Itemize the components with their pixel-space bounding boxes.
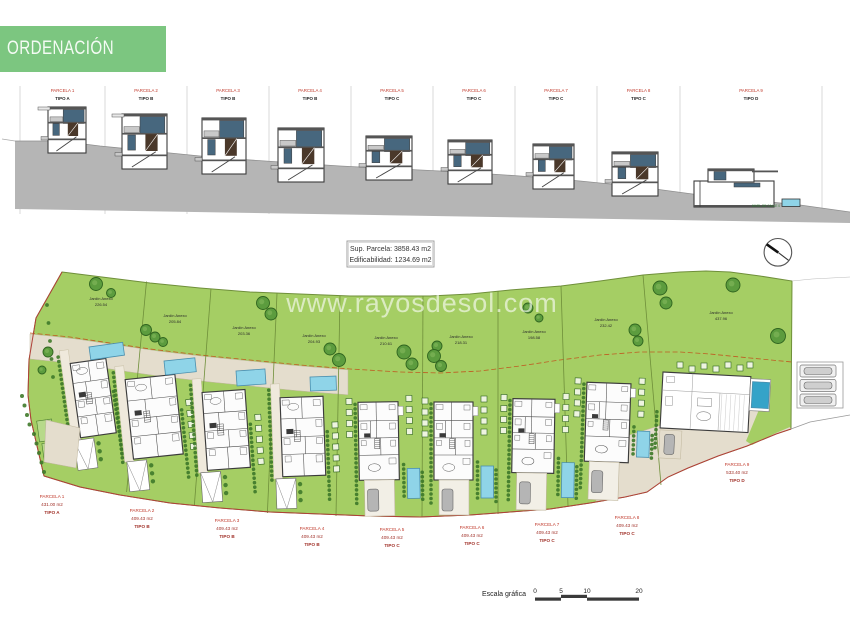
svg-text:PARCELA 3: PARCELA 3 [215, 518, 240, 523]
svg-text:Jardín Anexo: Jardín Anexo [594, 317, 618, 322]
svg-text:TIPO B: TIPO B [304, 542, 320, 547]
svg-text:437.96: 437.96 [715, 316, 728, 321]
svg-text:TIPO B: TIPO B [303, 96, 318, 101]
svg-text:PARCELA 4: PARCELA 4 [300, 526, 325, 531]
svg-text:5: 5 [559, 588, 563, 595]
svg-text:210.61: 210.61 [380, 341, 393, 346]
svg-text:409.43 m2: 409.43 m2 [381, 535, 403, 540]
svg-text:Jardín Anexo: Jardín Anexo [232, 325, 256, 330]
svg-text:TIPO C: TIPO C [384, 543, 400, 548]
svg-text:PARCELA 4: PARCELA 4 [298, 88, 322, 93]
svg-text:203.36: 203.36 [238, 331, 251, 336]
svg-text:TIPO C: TIPO C [549, 96, 564, 101]
svg-text:533.40 m2: 533.40 m2 [726, 470, 748, 475]
svg-text:PARCELA 2: PARCELA 2 [130, 508, 155, 513]
svg-text:Jardín Anexo: Jardín Anexo [302, 333, 326, 338]
svg-text:0: 0 [533, 588, 537, 595]
svg-text:409.43 m2: 409.43 m2 [216, 526, 238, 531]
svg-text:Jardín Anexo: Jardín Anexo [709, 310, 733, 315]
svg-text:PARCELA 8: PARCELA 8 [627, 88, 651, 93]
svg-text:PARCELA 6: PARCELA 6 [460, 525, 485, 530]
svg-text:PARCELA 3: PARCELA 3 [216, 88, 240, 93]
svg-text:NIVEL DE CALLE 0: NIVEL DE CALLE 0 [752, 204, 780, 208]
svg-text:TIPO A: TIPO A [44, 510, 60, 515]
svg-text:226.54: 226.54 [95, 302, 108, 307]
svg-text:TIPO A: TIPO A [55, 96, 70, 101]
svg-text:PARCELA 5: PARCELA 5 [380, 88, 404, 93]
svg-text:20: 20 [635, 588, 643, 595]
svg-text:TIPO C: TIPO C [619, 531, 635, 536]
svg-text:409.43 m2: 409.43 m2 [616, 523, 638, 528]
svg-text:10: 10 [583, 588, 591, 595]
svg-text:204.93: 204.93 [308, 339, 321, 344]
svg-text:205.84: 205.84 [169, 319, 182, 324]
svg-text:PARCELA 8: PARCELA 8 [615, 515, 640, 520]
svg-text:TIPO B: TIPO B [139, 96, 154, 101]
svg-text:TIPO B: TIPO B [219, 534, 235, 539]
svg-text:TIPO B: TIPO B [221, 96, 236, 101]
svg-text:TIPO C: TIPO C [385, 96, 400, 101]
svg-text:PARCELA 2: PARCELA 2 [134, 88, 158, 93]
svg-text:www.rayosdesol.com: www.rayosdesol.com [285, 288, 558, 318]
svg-text:Jardín Anexo: Jardín Anexo [374, 335, 398, 340]
svg-text:PARCELA 1: PARCELA 1 [40, 494, 65, 499]
svg-text:PARCELA 5: PARCELA 5 [380, 527, 405, 532]
svg-text:PARCELA 7: PARCELA 7 [535, 522, 560, 527]
svg-text:PARCELA 9: PARCELA 9 [725, 462, 750, 467]
svg-text:PARCELA 1: PARCELA 1 [51, 88, 75, 93]
svg-text:431.00 m2: 431.00 m2 [41, 502, 63, 507]
svg-text:PARCELA 9: PARCELA 9 [739, 88, 763, 93]
svg-text:TIPO C: TIPO C [631, 96, 646, 101]
svg-text:PARCELA 7: PARCELA 7 [544, 88, 568, 93]
svg-text:TIPO D: TIPO D [744, 96, 759, 101]
svg-text:232.42: 232.42 [600, 323, 613, 328]
svg-text:409.43 m2: 409.43 m2 [461, 533, 483, 538]
svg-text:TIPO C: TIPO C [539, 538, 555, 543]
svg-text:Escala gráfica: Escala gráfica [482, 591, 526, 598]
svg-text:409.43 m2: 409.43 m2 [536, 530, 558, 535]
svg-text:TIPO C: TIPO C [464, 541, 480, 546]
svg-text:PARCELA 6: PARCELA 6 [462, 88, 486, 93]
svg-text:TIPO D: TIPO D [729, 478, 745, 483]
svg-text:TIPO B: TIPO B [134, 524, 150, 529]
svg-text:Jardín Anexo: Jardín Anexo [449, 334, 473, 339]
svg-text:TIPO C: TIPO C [467, 96, 482, 101]
svg-text:218.31: 218.31 [455, 340, 468, 345]
svg-text:409.43 m2: 409.43 m2 [301, 534, 323, 539]
svg-text:Jardín Anexo: Jardín Anexo [522, 329, 546, 334]
svg-text:Jardín Anexo: Jardín Anexo [163, 313, 187, 318]
svg-text:198.58: 198.58 [528, 335, 541, 340]
svg-text:409.43 m2: 409.43 m2 [131, 516, 153, 521]
svg-text:Edificabilidad: 1234.69 m2: Edificabilidad: 1234.69 m2 [349, 257, 431, 264]
svg-text:Sup. Parcela: 3858.43 m2: Sup. Parcela: 3858.43 m2 [350, 246, 431, 253]
